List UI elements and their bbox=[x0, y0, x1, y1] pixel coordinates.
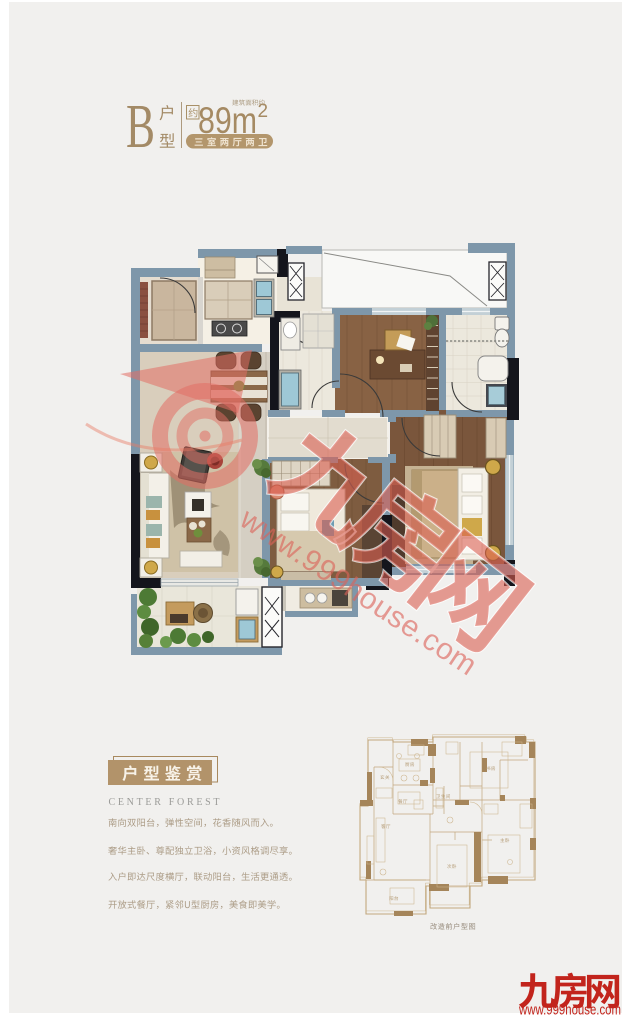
svg-text:B: B bbox=[126, 93, 155, 161]
svg-text:www.999house.com: www.999house.com bbox=[518, 1003, 621, 1019]
svg-text:2: 2 bbox=[258, 101, 269, 122]
svg-text:CENTER FOREST: CENTER FOREST bbox=[109, 797, 223, 808]
